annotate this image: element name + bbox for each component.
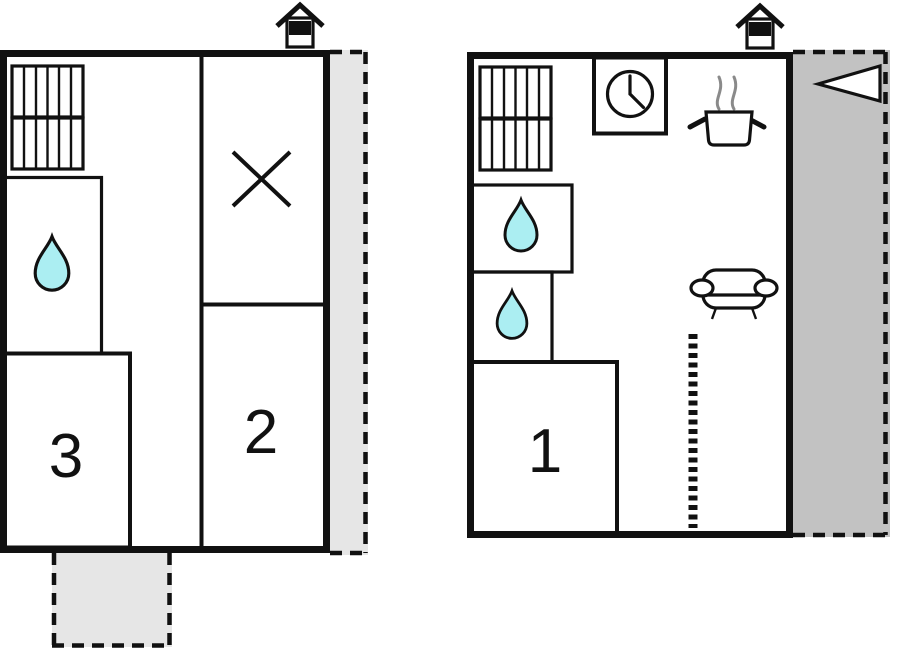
- clock-icon: [594, 58, 666, 134]
- right-floor-plan: 1: [469, 6, 890, 537]
- floor-plan: 2 3: [0, 0, 909, 652]
- room-1-label: 1: [528, 417, 562, 486]
- radiator-icon: [12, 66, 83, 169]
- radiator-icon: [480, 67, 551, 170]
- terrace-right-fill: [330, 50, 368, 555]
- floor-plan-canvas: 2 3: [0, 0, 909, 652]
- terrace-right: [793, 50, 890, 537]
- terrace-right-fill: [793, 50, 890, 537]
- terrace-right: [330, 50, 368, 555]
- left-floor-plan: 2 3: [4, 5, 369, 648]
- room-3-label: 3: [49, 422, 83, 491]
- house-entrance-icon: [737, 6, 783, 48]
- room-2-label: 2: [244, 398, 278, 467]
- terrace-bottom: [52, 551, 172, 648]
- house-entrance-icon: [277, 5, 323, 47]
- terrace-bottom-fill: [52, 551, 172, 647]
